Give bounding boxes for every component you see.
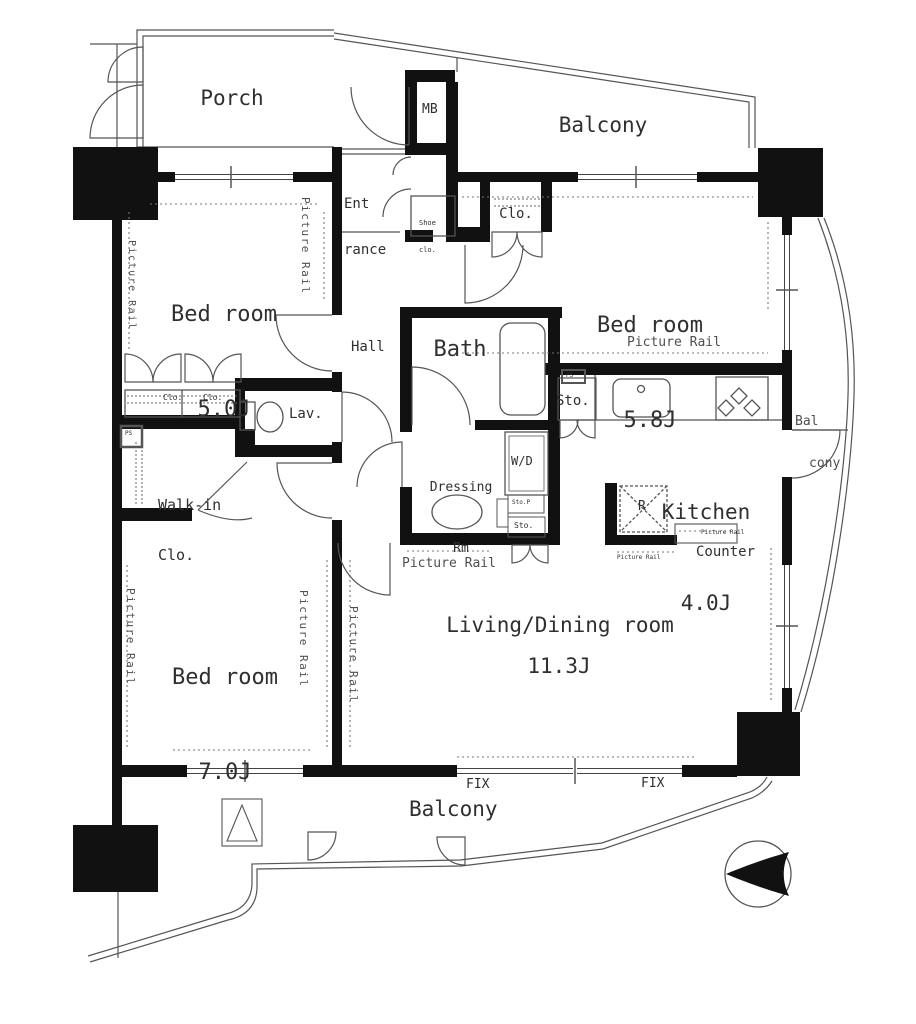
- label-closet-small: Clo.: [203, 394, 222, 403]
- label-picture-rail-tiny: Picture Rail: [701, 530, 744, 537]
- bathtub: [500, 323, 545, 415]
- room-label-kitchen: Kitchen 4.0J: [662, 436, 751, 649]
- room-label-balcony-top: Balcony: [559, 114, 648, 137]
- room-label-balcony-bottom: Balcony: [409, 798, 498, 821]
- label-meter-box: MB: [422, 103, 438, 117]
- room-label-bedroom-5-0: Bed room 5.0J: [171, 235, 277, 458]
- room-label-living-dining: Living/Dining room: [446, 614, 674, 637]
- label-washer-dryer: W/D: [511, 455, 533, 468]
- room-label-entrance: Ent rance: [344, 166, 386, 274]
- floor-plan: Porch Balcony MB Ent rance Shoe clo. Clo…: [0, 0, 916, 1024]
- label-balcony-side: Bal cony: [795, 386, 840, 486]
- label-picture-rail: Picture Rail: [297, 590, 309, 687]
- burner: [731, 388, 747, 404]
- burner: [744, 400, 760, 416]
- label-shoe-closet: Shoe clo.: [419, 201, 436, 265]
- label-counter: Counter: [696, 545, 755, 560]
- column: [73, 147, 158, 220]
- label-storage-small: Sto.: [514, 522, 533, 531]
- label-picture-rail: Picture Rail: [347, 606, 359, 703]
- room-label-walkin-closet: Walk-in Clo.: [158, 464, 221, 580]
- label-storage-p: Sto.P: [512, 500, 530, 507]
- room-label-lavatory: Lav.: [289, 407, 323, 422]
- label-picture-rail: Picture Rail: [124, 588, 136, 685]
- label-closet-entrance: Clo.: [499, 207, 533, 222]
- label-picture-rail: Picture Rail: [126, 240, 137, 330]
- label-picture-rail: Picture Rail: [402, 557, 496, 571]
- storage-niche: [497, 499, 508, 527]
- room-label-bath: Bath: [434, 338, 487, 362]
- label-pipe-space: PS: [125, 431, 132, 438]
- label-refrigerator: R: [638, 500, 646, 514]
- room-label-porch: Porch: [200, 87, 263, 110]
- room-label-bedroom-7-0: Bed room 7.0J: [172, 598, 278, 821]
- label-fix-window: FIX: [466, 778, 489, 792]
- column: [737, 712, 800, 776]
- north-arrow-icon: [725, 841, 791, 907]
- column: [758, 148, 823, 217]
- column: [73, 825, 158, 892]
- label-closet-small: Clo.: [163, 394, 182, 403]
- label-fix-window: FIX: [641, 777, 664, 791]
- label-picture-rail: Picture Rail: [627, 336, 721, 350]
- label-picture-rail: Picture Rail: [299, 197, 311, 294]
- room-label-living-dining-area: 11.3J: [527, 655, 590, 678]
- label-storage-kitchen: Sto.: [556, 394, 590, 409]
- label-pipe-space: PS: [566, 373, 573, 380]
- burner: [718, 400, 734, 416]
- room-label-hall: Hall: [351, 340, 385, 355]
- label-picture-rail-tiny: Picture Rail: [617, 555, 660, 562]
